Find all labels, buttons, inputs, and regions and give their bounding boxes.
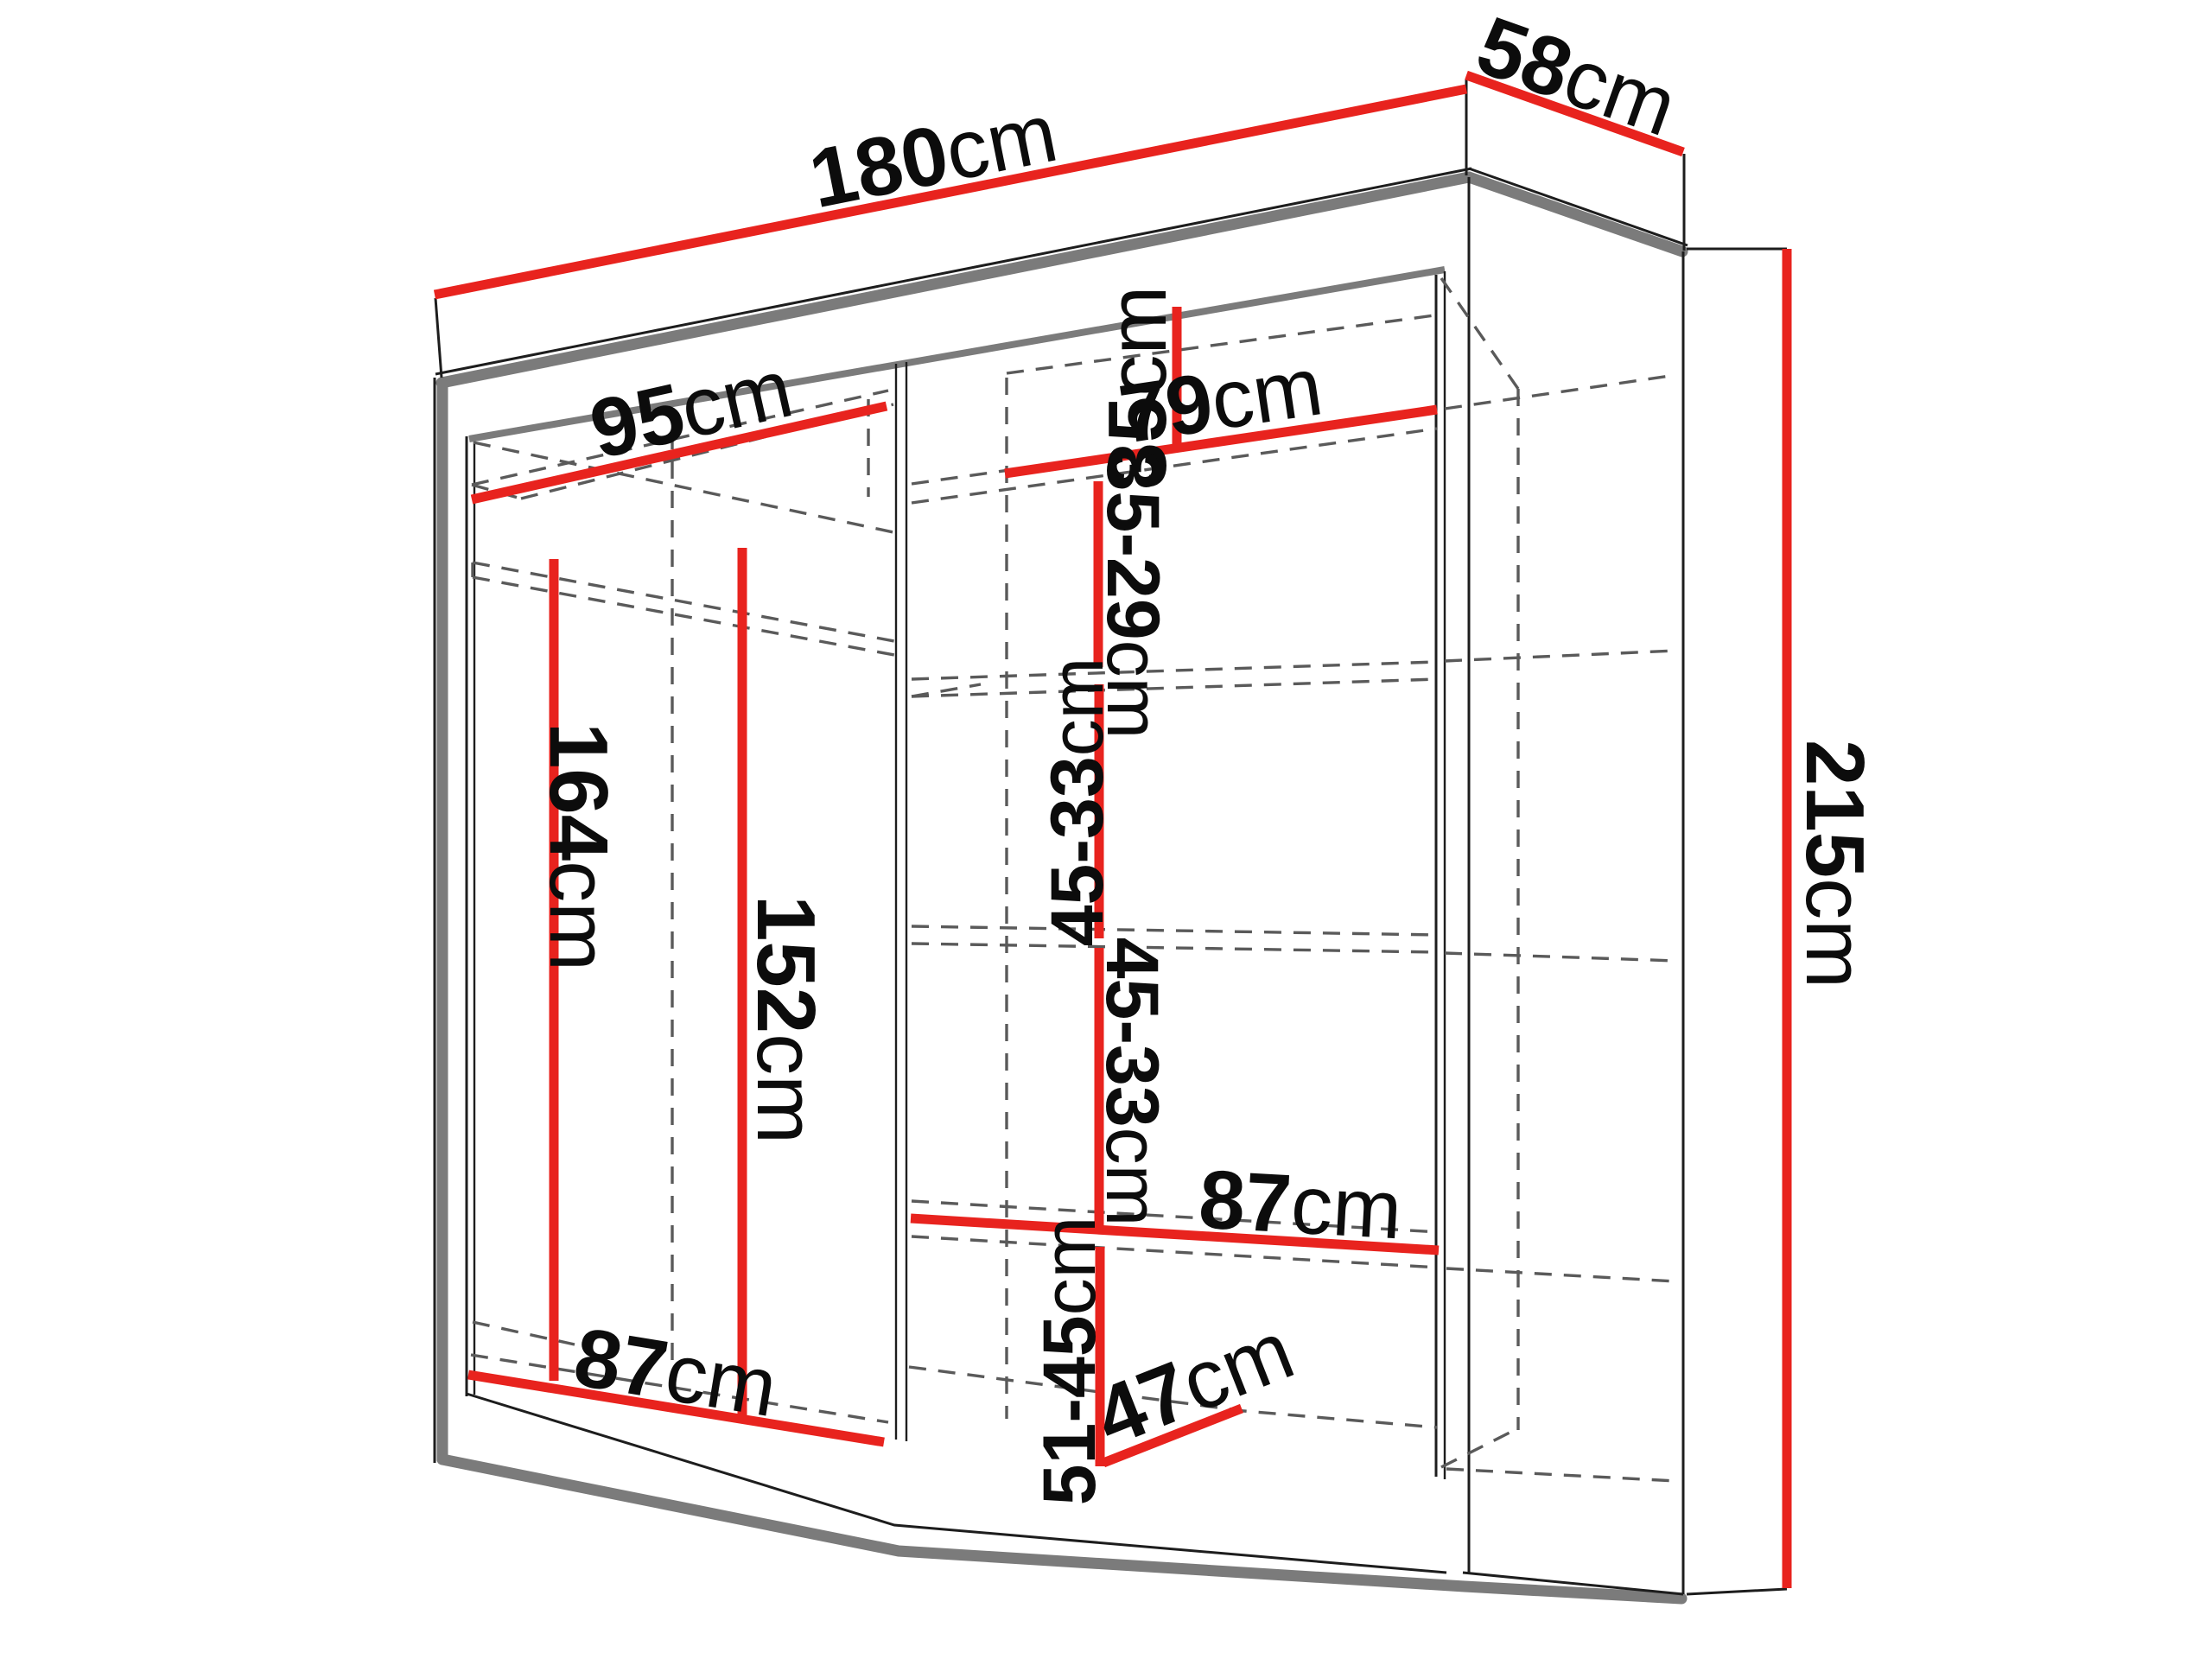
side-top-edge [1469, 177, 1682, 251]
wardrobe-dimension-diagram: 180cm 58cm 215cm 95cm 79cm 35cm 35-29cm … [0, 0, 2212, 1659]
label-shelf-gap-bottom: 51-45cm [1028, 1217, 1111, 1506]
label-left-bottom-width: 87cm [569, 1310, 784, 1434]
height-ext-bottom [1687, 1589, 1787, 1594]
front-top-outline [435, 168, 1471, 374]
shelf-c-side-line [1445, 953, 1676, 961]
label-hanging-height-left: 164cm [533, 722, 626, 971]
hanging-rail-bottom-edge [473, 577, 894, 655]
shelf-a-side-line [1445, 375, 1676, 409]
label-shelf-gap-mid-upper: 45-33cm [1036, 658, 1119, 947]
label-hanging-height-right: 152cm [741, 895, 833, 1144]
floor-depth-edge-left [473, 1322, 575, 1344]
shelf-d-side-line [1446, 1268, 1676, 1281]
diagram-svg: 180cm 58cm 215cm 95cm 79cm 35cm 35-29cm … [0, 0, 2212, 1659]
side-top-outline [1469, 168, 1688, 245]
hanging-rail-top-edge [473, 563, 894, 641]
label-interior-depth: 47cm [1083, 1303, 1306, 1464]
floor-side-line [1446, 1469, 1676, 1481]
top-right-depth-edge [1441, 278, 1518, 389]
shelf-c-front-edge [912, 944, 1437, 952]
label-total-depth: 58cm [1465, 0, 1688, 154]
floor-depth-edge-right [1441, 1428, 1518, 1467]
label-total-width: 180cm [802, 86, 1065, 225]
label-left-shelf-width: 95cm [582, 341, 801, 476]
shelf-c-back-edge [912, 926, 1437, 935]
label-total-height: 215cm [1789, 740, 1882, 988]
label-shelf-gap-mid-lower: 45-33cm [1090, 938, 1173, 1227]
width-ext-left [435, 298, 442, 378]
label-right-shelf-width-bottom: 87cm [1197, 1153, 1404, 1256]
plinth-top-edge [467, 1394, 1446, 1573]
shelf-b-side-line [1445, 651, 1676, 661]
